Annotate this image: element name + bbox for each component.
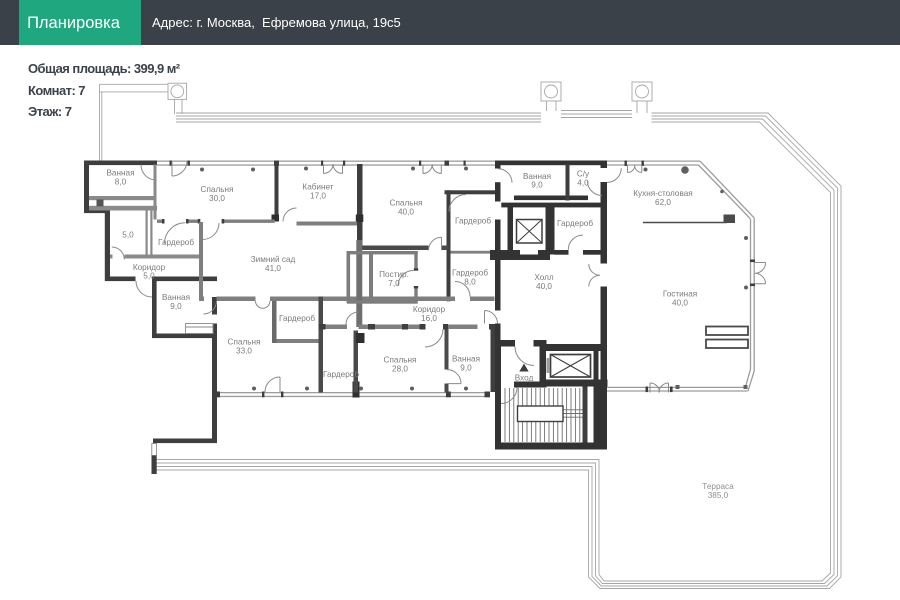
svg-text:Постир.: Постир. — [379, 270, 409, 279]
svg-text:Гардероб: Гардероб — [452, 269, 488, 278]
svg-text:Спальня: Спальня — [384, 356, 417, 365]
svg-text:33,0: 33,0 — [236, 347, 252, 356]
svg-text:9,0: 9,0 — [531, 181, 543, 190]
svg-text:Спальня: Спальня — [390, 199, 423, 208]
svg-text:Ванная: Ванная — [106, 169, 134, 178]
svg-text:Спальня: Спальня — [201, 185, 234, 194]
svg-text:Зимний сад: Зимний сад — [251, 255, 296, 264]
svg-text:Коридор: Коридор — [413, 305, 446, 314]
svg-text:8,0: 8,0 — [115, 178, 127, 187]
svg-text:40,0: 40,0 — [672, 299, 688, 308]
svg-text:5,0: 5,0 — [143, 272, 155, 281]
svg-text:Кухня-столовая: Кухня-столовая — [633, 189, 692, 198]
svg-text:Кабинет: Кабинет — [302, 183, 333, 192]
svg-text:Гардероб: Гардероб — [158, 238, 194, 247]
svg-text:40,0: 40,0 — [398, 208, 414, 217]
svg-text:Холл: Холл — [534, 273, 554, 282]
svg-text:Гардероб: Гардероб — [323, 370, 359, 379]
svg-text:62,0: 62,0 — [655, 198, 671, 207]
svg-text:4,0: 4,0 — [577, 179, 589, 188]
svg-text:7,0: 7,0 — [388, 279, 400, 288]
svg-text:Ванная: Ванная — [162, 293, 190, 302]
svg-text:Гардероб: Гардероб — [279, 314, 315, 323]
svg-text:9,0: 9,0 — [170, 302, 182, 311]
svg-text:Вход: Вход — [515, 374, 534, 383]
svg-text:Спальня: Спальня — [228, 338, 261, 347]
svg-text:16,0: 16,0 — [421, 314, 437, 323]
svg-text:9,0: 9,0 — [460, 364, 472, 373]
svg-text:28,0: 28,0 — [392, 365, 408, 374]
svg-text:385,0: 385,0 — [708, 491, 729, 500]
svg-text:Гостиная: Гостиная — [663, 290, 697, 299]
svg-text:17,0: 17,0 — [310, 192, 326, 201]
svg-text:30,0: 30,0 — [209, 194, 225, 203]
svg-text:40,0: 40,0 — [536, 282, 552, 291]
svg-text:С/у: С/у — [577, 170, 590, 179]
svg-text:8,0: 8,0 — [464, 278, 476, 287]
svg-text:Терраса: Терраса — [702, 482, 734, 491]
svg-text:Гардероб: Гардероб — [455, 217, 491, 226]
svg-text:5,0: 5,0 — [122, 231, 134, 240]
svg-text:Гардероб: Гардероб — [557, 219, 593, 228]
svg-text:41,0: 41,0 — [265, 264, 281, 273]
svg-text:Ванная: Ванная — [452, 355, 480, 364]
